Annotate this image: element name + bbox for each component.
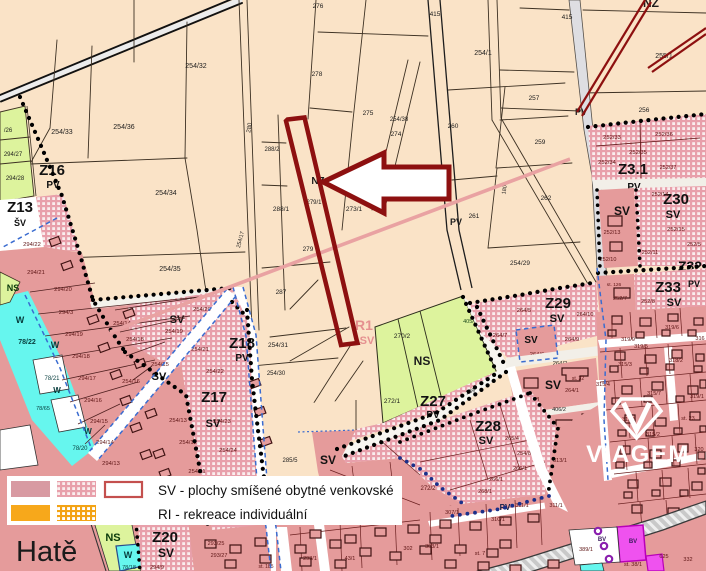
svg-text:319/5: 319/5	[634, 344, 648, 350]
svg-text:NS: NS	[414, 354, 431, 368]
svg-text:625: 625	[659, 554, 668, 560]
svg-text:SV: SV	[524, 335, 538, 346]
svg-text:275: 275	[363, 110, 374, 117]
svg-text:254/13: 254/13	[169, 418, 187, 424]
svg-text:SV: SV	[152, 371, 167, 383]
svg-text:278: 278	[312, 71, 323, 78]
svg-text:W: W	[124, 550, 133, 560]
svg-text:293/25: 293/25	[208, 541, 225, 547]
svg-text:st. 23: st. 23	[681, 416, 694, 422]
svg-text:288/1: 288/1	[273, 206, 290, 213]
svg-text:PV: PV	[688, 279, 700, 289]
svg-text:SV: SV	[360, 335, 375, 347]
svg-text:294/18: 294/18	[72, 354, 90, 360]
svg-text:319/9: 319/9	[621, 337, 635, 343]
svg-text:315/3: 315/3	[618, 362, 632, 368]
svg-text:252/15: 252/15	[667, 227, 685, 233]
svg-text:294/3: 294/3	[59, 310, 74, 316]
svg-text:NS: NS	[7, 283, 20, 293]
svg-text:320: 320	[694, 447, 703, 453]
svg-text:265/4: 265/4	[505, 436, 519, 442]
svg-text:BV: BV	[598, 537, 606, 543]
svg-text:VIAGEM: VIAGEM	[586, 441, 690, 468]
svg-text:SV: SV	[158, 546, 174, 560]
svg-text:276: 276	[313, 3, 324, 10]
svg-text:78/65: 78/65	[36, 406, 50, 412]
svg-text:274: 274	[391, 131, 402, 138]
svg-text:43/1: 43/1	[345, 556, 356, 562]
svg-text:318/2: 318/2	[669, 358, 683, 364]
svg-text:254/24: 254/24	[219, 448, 238, 454]
svg-text:Z13: Z13	[7, 199, 33, 216]
svg-text:303/1: 303/1	[425, 544, 439, 550]
svg-text:262: 262	[541, 195, 552, 202]
svg-text:254/38: 254/38	[390, 117, 409, 123]
svg-text:Z16: Z16	[39, 162, 65, 179]
svg-text:st. 38/1: st. 38/1	[624, 562, 642, 568]
svg-text:78/22: 78/22	[18, 339, 36, 346]
svg-text:332: 332	[683, 557, 692, 563]
svg-text:ŠV: ŠV	[14, 217, 26, 228]
svg-text:315/2: 315/2	[646, 432, 660, 438]
svg-text:SV - plochy smíšené obytné ven: SV - plochy smíšené obytné venkovské	[158, 483, 394, 498]
svg-text:252/33: 252/33	[603, 135, 621, 141]
svg-text:311/1: 311/1	[515, 503, 528, 509]
svg-text:254/1: 254/1	[474, 50, 492, 57]
svg-text:NS: NS	[105, 532, 120, 544]
svg-text:319/1: 319/1	[690, 394, 704, 400]
svg-text:294/13: 294/13	[102, 461, 120, 467]
svg-text:R1: R1	[355, 317, 373, 333]
svg-text:Hatě: Hatě	[16, 536, 77, 568]
svg-text:SV: SV	[666, 209, 681, 221]
svg-text:266/1: 266/1	[489, 477, 503, 483]
svg-text:252/35: 252/35	[629, 150, 647, 156]
svg-text:78/18: 78/18	[122, 565, 136, 571]
svg-text:252/34: 252/34	[598, 160, 617, 166]
svg-text:252/7: 252/7	[613, 296, 627, 302]
svg-text:RI - rekreace individuální: RI - rekreace individuální	[158, 507, 308, 522]
svg-text:254/16: 254/16	[122, 379, 140, 385]
svg-text:285/5: 285/5	[282, 458, 298, 464]
svg-text:Z33: Z33	[655, 279, 681, 296]
svg-text:78/21: 78/21	[44, 376, 60, 382]
svg-text:264/7: 264/7	[493, 333, 508, 339]
svg-text:st. 7: st. 7	[475, 551, 485, 557]
svg-text:266/1: 266/1	[513, 466, 527, 472]
svg-text:272/2: 272/2	[420, 486, 436, 492]
svg-text:264/5: 264/5	[517, 308, 532, 314]
svg-text:254/19: 254/19	[165, 329, 183, 335]
svg-text:st. 126: st. 126	[607, 282, 622, 288]
svg-text:415: 415	[562, 14, 573, 21]
svg-text:SV: SV	[550, 313, 565, 325]
svg-text:252/10: 252/10	[600, 257, 617, 263]
svg-text:W: W	[53, 386, 61, 395]
svg-text:264/9: 264/9	[565, 337, 580, 343]
svg-text:SV: SV	[545, 378, 561, 392]
svg-text:Z17: Z17	[201, 389, 227, 406]
svg-text:257: 257	[529, 95, 540, 102]
svg-text:264/10: 264/10	[577, 312, 594, 318]
svg-text:st. 185: st. 185	[258, 564, 273, 570]
svg-text:252/14: 252/14	[652, 192, 669, 198]
svg-text:294/20: 294/20	[54, 287, 72, 293]
svg-text:252/37: 252/37	[660, 165, 677, 171]
svg-text:252/13: 252/13	[604, 230, 621, 236]
svg-text:311/1: 311/1	[549, 503, 562, 509]
svg-text:254/21: 254/21	[191, 347, 209, 353]
svg-text:256: 256	[639, 107, 650, 114]
svg-text:SV: SV	[479, 435, 494, 447]
svg-text:PV: PV	[450, 217, 462, 227]
svg-text:252/8: 252/8	[641, 299, 655, 305]
svg-text:279: 279	[303, 246, 314, 253]
svg-text:252/5: 252/5	[687, 242, 701, 248]
svg-text:st. 32: st. 32	[572, 376, 584, 382]
svg-text:254/34: 254/34	[155, 190, 177, 197]
svg-text:Z28: Z28	[475, 418, 501, 435]
svg-text:293/27: 293/27	[211, 553, 228, 559]
svg-text:293/1: 293/1	[303, 556, 317, 562]
svg-text:273/1: 273/1	[346, 206, 363, 213]
svg-text:W: W	[51, 340, 60, 350]
svg-text:294/16: 294/16	[84, 398, 102, 404]
svg-text:BV: BV	[629, 539, 637, 545]
svg-text:254/31: 254/31	[268, 342, 288, 349]
svg-text:415: 415	[430, 11, 441, 18]
svg-text:PV: PV	[235, 353, 249, 364]
svg-text:316: 316	[695, 336, 704, 342]
svg-text:SV: SV	[667, 297, 682, 309]
svg-text:Z29: Z29	[545, 295, 571, 312]
svg-text:294/17: 294/17	[78, 376, 96, 382]
svg-text:254/23: 254/23	[213, 419, 231, 425]
svg-text:254/8: 254/8	[517, 451, 531, 457]
svg-text:254/29: 254/29	[510, 260, 530, 267]
svg-text:78/20: 78/20	[72, 446, 88, 452]
svg-text:294/28: 294/28	[6, 176, 25, 182]
svg-text:254/18: 254/18	[126, 337, 144, 343]
svg-text:310/1: 310/1	[491, 517, 505, 523]
svg-text:252/11: 252/11	[642, 250, 658, 256]
svg-text:288/2: 288/2	[264, 147, 280, 153]
svg-text:254/36: 254/36	[113, 124, 135, 131]
svg-text:252/36: 252/36	[655, 132, 673, 138]
svg-text:SV: SV	[614, 204, 630, 218]
svg-text:264/1: 264/1	[565, 388, 579, 394]
svg-text:254/22: 254/22	[206, 369, 224, 375]
svg-text:319/6: 319/6	[665, 325, 679, 331]
svg-text:SV: SV	[320, 453, 336, 467]
svg-text:Z20: Z20	[152, 529, 178, 546]
svg-text:389/1: 389/1	[579, 547, 593, 553]
svg-text:294/9: 294/9	[150, 565, 164, 571]
svg-text:254/32: 254/32	[185, 63, 207, 70]
svg-text:W: W	[16, 315, 25, 325]
svg-text:259: 259	[535, 139, 546, 146]
svg-text:NZ: NZ	[643, 0, 659, 10]
svg-text:302: 302	[403, 546, 412, 552]
svg-text:294/27: 294/27	[4, 152, 23, 158]
svg-text:260: 260	[448, 123, 459, 130]
svg-text:Z3.1: Z3.1	[618, 161, 648, 178]
svg-text:315/7: 315/7	[647, 391, 661, 397]
svg-text:294/21: 294/21	[27, 270, 45, 276]
svg-text:406/2: 406/2	[552, 407, 566, 413]
svg-text:294/19: 294/19	[65, 332, 83, 338]
svg-text:272/1: 272/1	[384, 398, 401, 405]
svg-text:254/30: 254/30	[267, 371, 286, 377]
svg-text:315/4: 315/4	[596, 382, 610, 388]
svg-text:254/20: 254/20	[193, 307, 211, 313]
svg-text:254/35: 254/35	[159, 266, 181, 273]
svg-text:294/15: 294/15	[90, 419, 108, 425]
svg-text:261: 261	[469, 213, 480, 220]
svg-text:270/2: 270/2	[394, 333, 411, 340]
svg-text:254/15: 254/15	[151, 362, 169, 368]
svg-text:/26: /26	[4, 128, 13, 134]
svg-text:287: 287	[276, 289, 287, 296]
svg-text:254/11: 254/11	[188, 469, 205, 475]
svg-text:294/22: 294/22	[23, 242, 41, 248]
svg-text:254/33: 254/33	[51, 129, 73, 136]
svg-text:268/1: 268/1	[478, 489, 492, 495]
